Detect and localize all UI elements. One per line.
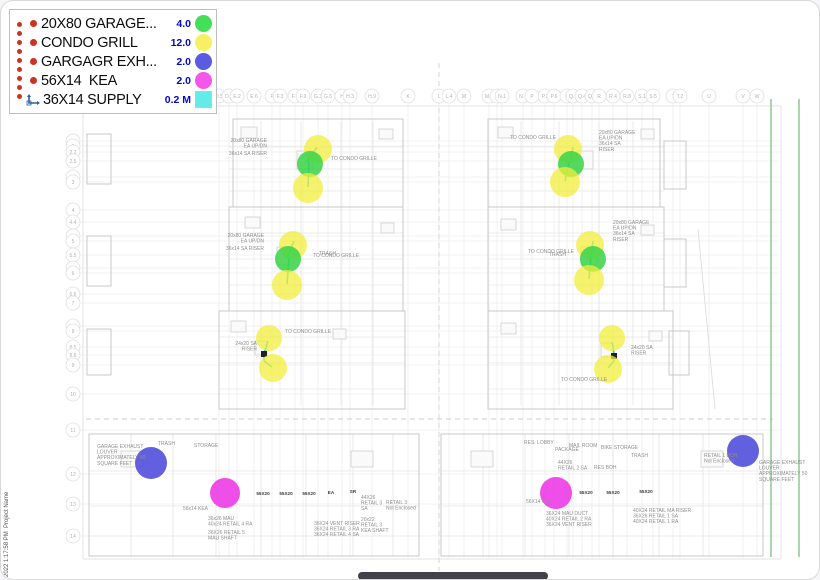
- legend-item[interactable]: 20X80 GARAGE...4.0: [12, 14, 212, 33]
- room-outline: [333, 329, 346, 339]
- room-outline: [241, 127, 257, 138]
- plan-annotation: RETAIL 1 BOHNot Enclosed: [704, 453, 738, 465]
- plan-annotation: TO CONDO GRILLE: [285, 329, 332, 335]
- plan-annotation: RES. LOBBY: [524, 440, 554, 446]
- red-dot: [17, 76, 22, 81]
- plan-annotation: 20x80 GARAGEEA UP/DN: [231, 138, 268, 150]
- legend-panel: 20X80 GARAGE...4.0CONDO GRILL12.0GARGAGR…: [9, 9, 217, 114]
- plan-annotation: TO CONDO GRILLE: [561, 377, 608, 383]
- plan-annotation: TRASH: [549, 252, 566, 258]
- building-outline: [87, 329, 111, 375]
- kea-marker[interactable]: [210, 478, 240, 508]
- column-grid-label: S.1: [638, 94, 646, 100]
- plan-annotation: 36X24 MAU DUCT40X24 RETAIL 2 RA36X24 VEN…: [546, 511, 592, 528]
- row-grid-label: 14: [70, 534, 76, 540]
- column-grid-label: U: [707, 94, 711, 100]
- column-grid-label: F.3: [277, 94, 284, 100]
- garage-ea-marker[interactable]: [275, 246, 301, 272]
- room-outline: [379, 129, 393, 139]
- column-grid-label: N.1: [498, 94, 506, 100]
- legend-item[interactable]: 36X14 SUPPLY0.2 M: [12, 90, 212, 109]
- legend-item-value: 0.2 M: [159, 94, 191, 106]
- column-grid-label: H.9: [368, 94, 376, 100]
- red-dot: [17, 85, 22, 90]
- plan-annotation: 40X24 RETAIL MA RISER36X26 RETAIL 1 SA40…: [633, 508, 691, 525]
- row-grid-label: 2.5: [70, 159, 77, 165]
- plan-annotation: 56X14 KEA: [526, 499, 553, 505]
- row-grid-label: 11: [70, 428, 75, 434]
- plan-annotation: TRASH: [631, 453, 648, 459]
- column-grid-label: M: [462, 94, 466, 100]
- condo-grille-marker[interactable]: [272, 270, 302, 300]
- plan-annotation: 36x26 MAU40x24 RETAIL 4 RA: [208, 516, 253, 528]
- garage-ea-marker[interactable]: [297, 151, 323, 177]
- red-dot-strip: [17, 22, 22, 99]
- red-dot: [17, 67, 22, 72]
- plan-annotation: 20x22RETAIL 3KEA SHAFT: [361, 517, 389, 534]
- red-dot-bullet: [30, 20, 37, 27]
- column-grid-label: T.2: [677, 94, 684, 100]
- building-outline: [664, 239, 686, 287]
- plan-annotation: TO CONDO GRILLE: [331, 156, 378, 162]
- room-outline: [501, 219, 516, 230]
- plan-annotation: TRASH: [158, 441, 175, 447]
- legend-item-swatch: [195, 53, 212, 70]
- building-outline: [87, 236, 111, 286]
- row-grid-label: 4.4: [70, 220, 77, 226]
- column-grid-label: P.6: [551, 94, 558, 100]
- legend-rows: 20X80 GARAGE...4.0CONDO GRILL12.0GARGAGR…: [12, 14, 212, 109]
- building-outline: [669, 331, 689, 375]
- plan-annotation: BIKE STORAGE: [601, 445, 639, 451]
- row-grid-label: 12: [70, 472, 76, 478]
- room-outline: [231, 321, 246, 332]
- column-grid-label: W: [755, 94, 760, 100]
- red-dot-bullet: [30, 39, 37, 46]
- room-outline: [641, 129, 654, 139]
- dimension-icon: [25, 93, 41, 107]
- condo-grille-marker[interactable]: [256, 325, 282, 351]
- column-grid-label: G.6: [324, 94, 332, 100]
- plan-annotation: TRASH: [319, 251, 336, 257]
- row-grid-label: 10: [70, 392, 76, 398]
- row-grid-label: 9: [72, 363, 75, 369]
- condo-grille-marker[interactable]: [293, 173, 323, 203]
- plan-annotation: RETAIL 3Not Enclosed: [386, 500, 416, 512]
- column-grid-label: L: [438, 94, 441, 100]
- plan-annotation: 20x80 GARAGEEA UP/DN: [228, 233, 265, 245]
- legend-item-swatch: [195, 91, 212, 108]
- red-dot: [17, 58, 22, 63]
- condo-grille-marker[interactable]: [574, 265, 604, 295]
- row-grid-label: 3: [72, 180, 75, 186]
- plan-annotation: TO CONDO GRILLE: [510, 135, 557, 141]
- column-grid-label: R.8: [623, 94, 631, 100]
- column-grid-label: H.3: [346, 94, 354, 100]
- legend-item[interactable]: CONDO GRILL12.0: [12, 33, 212, 52]
- duct-size-tag: 55X20: [279, 491, 293, 496]
- garage-exhaust-marker[interactable]: [135, 447, 167, 479]
- legend-item-label: 36X14 SUPPLY: [43, 92, 159, 108]
- condo-grille-marker[interactable]: [550, 167, 580, 197]
- project-name-vertical-label: Project Name: [4, 492, 10, 528]
- room-outline: [381, 223, 394, 233]
- window-drag-handle[interactable]: [358, 572, 548, 580]
- red-dot: [17, 49, 22, 54]
- row-grid-label: 5: [72, 239, 75, 245]
- red-dot-bullet: [30, 58, 37, 65]
- legend-item-label: 56X14 KEA: [41, 73, 159, 89]
- row-grid-label: 5.5: [70, 253, 77, 259]
- red-dot: [17, 22, 22, 27]
- app-window: 20x80 GARAGEEA UP/DN36x14 SA RISERTO CON…: [0, 0, 820, 580]
- condo-grille-marker[interactable]: [259, 354, 287, 382]
- column-grid-label: F.9: [300, 94, 307, 100]
- plan-annotation: 36x14 SA RISER: [226, 246, 264, 252]
- legend-item-value: 4.0: [159, 18, 191, 30]
- duct-size-tag: 55X20: [256, 491, 270, 496]
- legend-item-value: 2.0: [159, 56, 191, 68]
- plan-annotation: 24x20 SARISER: [235, 341, 257, 353]
- column-grid-label: R.4: [609, 94, 617, 100]
- duct-size-tag: SR: [350, 489, 357, 494]
- row-grid-label: 6: [72, 271, 75, 277]
- plan-annotation: STORAGE: [194, 443, 219, 449]
- duct-size-tag: EA: [328, 490, 335, 495]
- red-dot: [17, 40, 22, 45]
- column-grid-label: E.6: [250, 94, 258, 100]
- plan-annotation: 56x14 KEA: [183, 506, 209, 512]
- timestamp-vertical-label: 2022 1:17:58 PM: [4, 531, 10, 577]
- condo-grille-marker[interactable]: [599, 325, 625, 351]
- legend-item[interactable]: GARGAGR EXH...2.0: [12, 52, 212, 71]
- column-grid-label: R: [597, 94, 601, 100]
- duct-size-tag: 55X20: [606, 490, 620, 495]
- plan-annotation: 36X24 VENT RISER36X24 RETAIL 3 RA36X24 R…: [314, 521, 360, 538]
- plan-annotation: 36x14 SA RISER: [229, 151, 267, 157]
- room-outline: [471, 451, 493, 467]
- plan-annotation: RES BOH: [594, 465, 617, 471]
- room-outline: [245, 217, 260, 228]
- room-outline: [649, 331, 662, 341]
- legend-item-value: 12.0: [159, 37, 191, 49]
- legend-item-label: CONDO GRILL: [41, 35, 159, 51]
- room-outline: [351, 451, 373, 467]
- legend-item-label: GARGAGR EXH...: [41, 54, 159, 70]
- duct-size-tag: 55X20: [639, 489, 653, 494]
- duct-size-tag: 55X20: [579, 490, 593, 495]
- column-grid-label: S.5: [649, 94, 657, 100]
- row-grid-label: 13: [70, 502, 76, 508]
- plan-annotation: MAIL ROOM: [569, 443, 597, 449]
- duct-size-tag: 55X20: [302, 491, 316, 496]
- row-grid-label: 4: [72, 208, 75, 214]
- room-outline: [501, 323, 516, 334]
- row-grid-label: 8: [72, 329, 75, 335]
- legend-item-swatch: [195, 15, 212, 32]
- column-grid-label: L.4: [446, 94, 453, 100]
- room-outline: [641, 225, 654, 235]
- plan-annotation: GARAGE EXHAUSTLOUVERAPPROXIMATELY 50SQUA…: [759, 460, 808, 483]
- legend-item[interactable]: 56X14 KEA2.0: [12, 71, 212, 90]
- legend-item-label: 20X80 GARAGE...: [41, 16, 159, 32]
- row-grid-label: 7: [72, 301, 75, 307]
- red-dot: [17, 94, 22, 99]
- legend-item-swatch: [195, 34, 212, 51]
- red-dot: [17, 31, 22, 36]
- plan-annotation: 36X26 RETAIL 5MAU SHAFT: [208, 530, 245, 542]
- column-grid-label: E.2: [233, 94, 241, 100]
- diagonal-line: [698, 229, 715, 409]
- legend-item-value: 2.0: [159, 75, 191, 87]
- red-dot-bullet: [30, 77, 37, 84]
- legend-item-swatch: [195, 72, 212, 89]
